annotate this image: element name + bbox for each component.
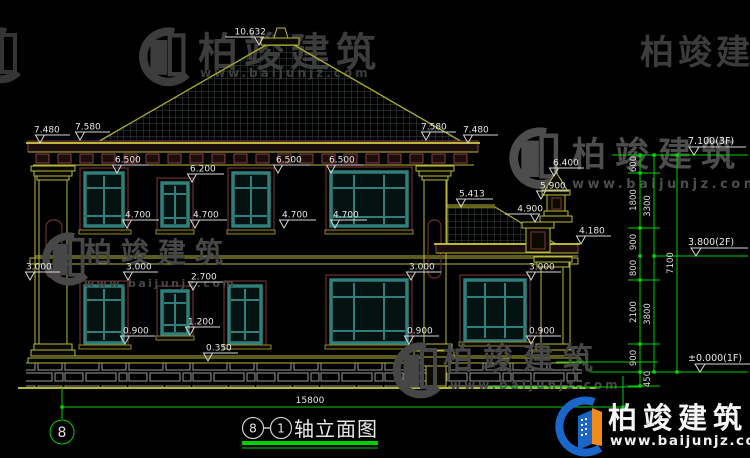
elevation-value: 6.400 — [553, 159, 579, 169]
chain-segment: 900 — [629, 234, 639, 250]
watermark-url: www.baijunjz.com — [572, 177, 750, 192]
building-elevation — [18, 28, 598, 388]
elevation-marker: 0.900 — [405, 327, 440, 345]
elevation-value: 3.000 — [409, 263, 435, 273]
title-axis-left: 8 — [249, 422, 257, 436]
elevation-marker: 1.200 — [186, 318, 221, 336]
chain-segment: 1800 — [629, 189, 639, 211]
elevation-value: 4.700 — [333, 211, 359, 221]
elevation-value: 0.900 — [529, 327, 555, 337]
main-cornice — [26, 141, 480, 165]
elevation-value: 3.000 — [529, 263, 555, 273]
elevation-value: 7.480 — [463, 126, 489, 136]
chimney — [522, 222, 554, 252]
elevation-value: 3.000 — [126, 263, 152, 273]
elevation-marker: 4.180 — [577, 227, 612, 245]
elevation-marker: 4.700 — [123, 211, 160, 229]
window — [459, 275, 533, 346]
chain-total: 3800 — [643, 303, 653, 325]
watermark-brand: 柏竣建筑 — [443, 342, 603, 377]
level-label: 7.100(3F) — [688, 136, 734, 147]
elevation-value: 10.632 — [235, 28, 267, 38]
window — [325, 275, 413, 349]
chain-segment: 450 — [643, 371, 653, 387]
brand-logo: 柏竣建筑 www.baijunjz.com — [559, 401, 750, 453]
elevation-value: 5.413 — [459, 190, 485, 200]
elevation-value: 4.180 — [579, 227, 605, 237]
elevation-value: 7.480 — [34, 126, 60, 136]
chain-overall: 7100 — [666, 252, 676, 274]
elevation-value: 7.580 — [75, 123, 101, 133]
watermark-top: 柏竣建筑 www.baijunjz.com 柏竣建筑 — [0, 30, 750, 82]
watermark-url: www.baijunjz.com — [450, 378, 621, 392]
chain-total: 3300 — [643, 195, 653, 217]
elevation-value: 4.900 — [517, 205, 543, 215]
elevation-marker: 7.480 — [34, 126, 70, 144]
chain-segment: 800 — [629, 260, 639, 276]
elevation-value: 4.700 — [282, 211, 308, 221]
elevation-value: 7.580 — [421, 123, 447, 133]
axis-bubble: 8 — [50, 420, 74, 444]
elevation-marker: 0.900 — [121, 327, 156, 345]
elevation-value: 6.200 — [190, 165, 216, 175]
brand-logo-url: www.baijunjz.com — [610, 433, 750, 449]
elevation-value: 2.700 — [191, 273, 217, 283]
elevation-value: 3.000 — [26, 263, 52, 273]
elevation-value: 6.500 — [115, 156, 141, 166]
total-width-value: 15800 — [296, 396, 325, 406]
elevation-marker: 7.480 — [463, 126, 498, 144]
dentil-band — [36, 154, 467, 163]
level-marker: 3.800(2F) — [688, 237, 748, 256]
chain-segment: 2100 — [629, 301, 639, 323]
elevation-value: 4.700 — [193, 211, 219, 221]
elevation-marker: 5.413 — [457, 190, 494, 208]
window — [223, 281, 271, 349]
axis-bubble-label: 8 — [58, 425, 67, 441]
level-label: 3.800(2F) — [688, 237, 734, 248]
chain-segment: 900 — [629, 350, 639, 366]
window — [79, 281, 131, 349]
elevation-marker: 6.200 — [188, 165, 225, 183]
watermark-brand: 柏竣建筑 — [640, 33, 750, 73]
watermark-brand: 柏竣建筑 — [84, 236, 232, 269]
elevation-value: 6.500 — [329, 156, 355, 166]
chain-segment: 600 — [629, 156, 639, 172]
elevation-marker: 4.700 — [280, 211, 317, 229]
elevation-value: 0.900 — [123, 327, 149, 337]
title-axis-right: 1 — [277, 422, 285, 436]
elevation-marker: 4.700 — [191, 211, 228, 229]
elevation-marker: 6.500 — [113, 156, 150, 174]
elevation-drawing: 柏竣建筑 www.baijunjz.com 柏竣建筑 柏竣建筑 www.baij… — [0, 0, 750, 458]
cad-canvas: 柏竣建筑 www.baijunjz.com 柏竣建筑 柏竣建筑 www.baij… — [0, 0, 750, 458]
title-underline — [242, 441, 378, 445]
title-label: 轴立面图 — [294, 417, 378, 441]
window — [156, 178, 194, 234]
elevation-value: 5.900 — [540, 182, 566, 192]
elevation-value: 0.900 — [407, 327, 433, 337]
level-marker: ±0.000(1F) — [688, 353, 750, 372]
elevation-value: 0.350 — [206, 344, 232, 354]
window — [325, 167, 413, 234]
elevation-value: 1.200 — [188, 318, 214, 328]
elevation-value: 4.700 — [125, 211, 151, 221]
elevation-value: 6.500 — [276, 156, 302, 166]
brand-logo-name: 柏竣建筑 — [608, 401, 748, 435]
brand-logo-icon — [559, 401, 602, 453]
window — [227, 168, 275, 234]
drawing-title: 8 1 轴立面图 — [242, 417, 378, 448]
level-label: ±0.000(1F) — [688, 353, 742, 364]
window — [79, 168, 131, 234]
